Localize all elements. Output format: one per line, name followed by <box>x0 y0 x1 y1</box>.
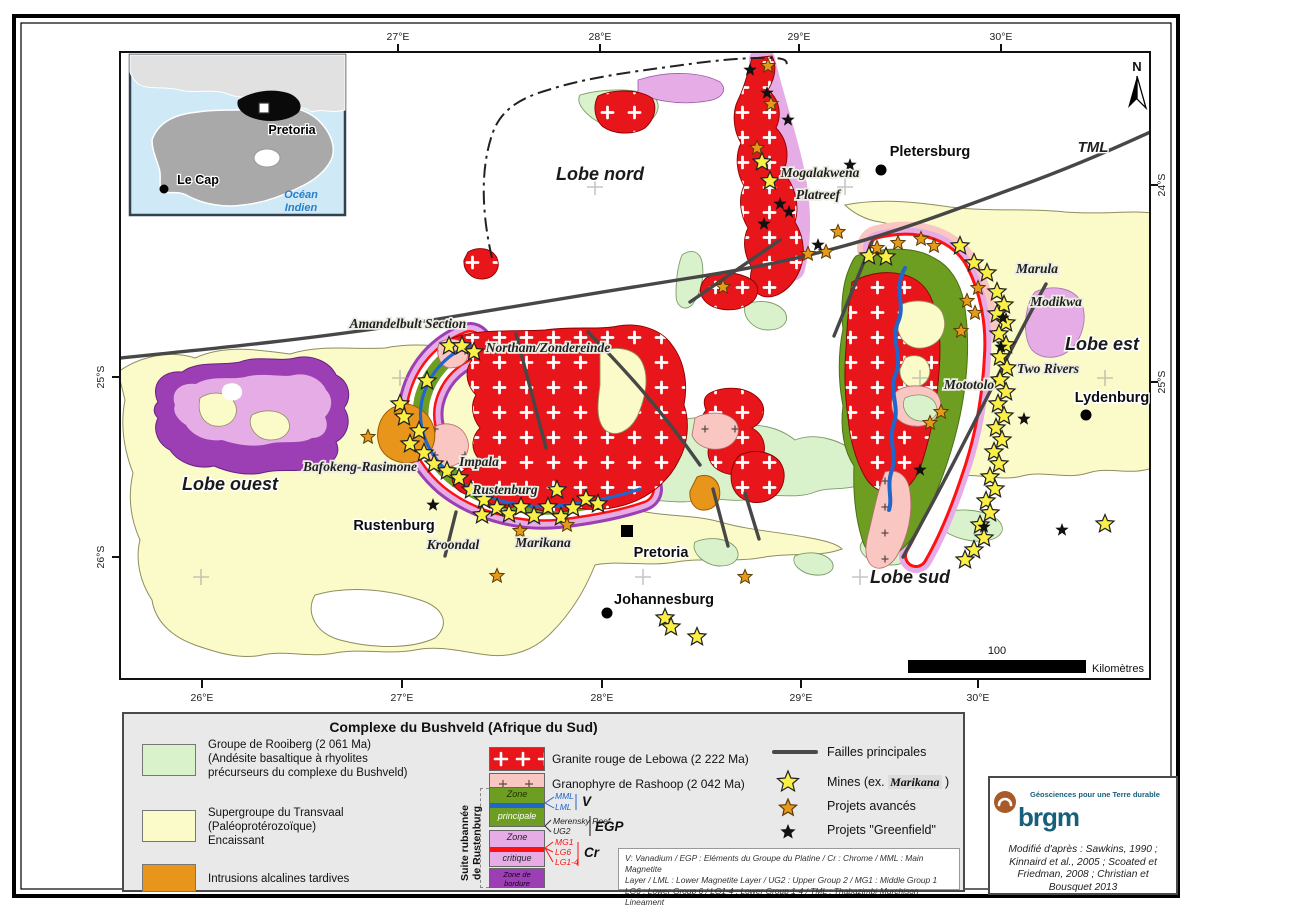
mine-label: Kroondal <box>426 537 480 552</box>
swatch-intrusions <box>142 864 196 892</box>
figure: 27°E28°E29°E30°E26°E27°E28°E29°E30°E25°S… <box>0 0 1304 922</box>
tick-label-top: 28°E <box>589 31 612 43</box>
mine-star <box>688 628 706 645</box>
city-marker <box>1081 410 1092 421</box>
scalebar: 100 Kilomètres <box>908 645 1144 675</box>
graticule-cross <box>852 569 868 585</box>
tick-label-right: 25°S <box>1156 371 1168 394</box>
city-label: Rustenburg <box>353 518 434 534</box>
egp-symbol: EGP <box>595 819 624 834</box>
city-marker <box>621 525 633 537</box>
mine-star-icon <box>774 768 802 796</box>
brgm-tagline: Géosciences pour une Terre durable <box>1030 790 1160 799</box>
north-arrow: N <box>1128 59 1146 108</box>
mine-label: Marikana <box>514 535 571 550</box>
brgm-wordmark: brgm <box>1018 802 1079 833</box>
region-label: Lobe est <box>1065 334 1140 354</box>
scalebar-unit: Kilomètres <box>1092 663 1144 675</box>
tick-label-bottom: 26°E <box>191 692 214 704</box>
graticule-cross <box>635 569 651 585</box>
zone-principale-box: Zone principale <box>489 787 545 827</box>
inset-lecap-label: Le Cap <box>177 173 219 187</box>
mine-label: Mototolo <box>943 377 995 392</box>
advanced-project-star <box>819 245 833 259</box>
mine-label: Rustenburg <box>471 482 538 497</box>
mines-label: Mines (ex. Marikana ) <box>827 775 949 790</box>
mine-star <box>1096 515 1114 532</box>
legend-rashoop-label: Granophyre de Rashoop (2 042 Ma) <box>552 777 745 791</box>
scalebar-bar <box>908 660 1086 673</box>
tick-label-bottom: 29°E <box>790 692 813 704</box>
swatch-transvaal <box>142 810 196 842</box>
mine-label: Northam/Zondereinde <box>485 340 611 355</box>
zone-bordure-box: Zone de bordure <box>489 868 545 888</box>
lml-label: LML <box>555 803 572 813</box>
fault-line-sample <box>772 750 818 754</box>
city-label: Lydenburg <box>1075 390 1149 406</box>
north-label: N <box>1132 59 1141 74</box>
tick-label-top: 27°E <box>387 31 410 43</box>
tick-label-left: 25°S <box>95 366 107 389</box>
zone-critique-box: Zone critique <box>489 830 545 867</box>
tml-fault-label: TML <box>1078 139 1109 156</box>
greenfield-star-icon <box>774 818 802 846</box>
mine-label: Platreef <box>796 187 842 202</box>
yellow-window-east2 <box>900 356 930 387</box>
legend-item-rooiberg: Groupe de Rooiberg (2 061 Ma)(Andésite b… <box>208 738 407 780</box>
leg-star-mines-glyph <box>778 771 799 791</box>
marikana-example: Marikana <box>888 775 941 789</box>
mine-label: Modikwa <box>1029 294 1082 309</box>
city-marker <box>602 608 613 619</box>
swatch-rooiberg <box>142 744 196 776</box>
tick-label-top: 30°E <box>990 31 1013 43</box>
tick-label-left: 26°S <box>95 546 107 569</box>
mml-label: MML <box>555 792 574 802</box>
mine-label: Amandelbult Section <box>349 316 467 331</box>
legend-lebowa-label: Granite rouge de Lebowa (2 222 Ma) <box>552 752 749 766</box>
city-marker <box>876 165 887 176</box>
legend-item-transvaal: Supergroupe du Transvaal(Paléoprotérozoï… <box>208 806 344 848</box>
region-label: Lobe ouest <box>182 474 279 494</box>
inset-pretoria-label: Pretoria <box>268 123 316 137</box>
brgm-logo-icon <box>992 789 1018 815</box>
suite-label: Suite rubannéede Rustenburg <box>459 784 483 902</box>
map-credit: Modifié d'après : Sawkins, 1990 ; Kinnai… <box>994 844 1172 894</box>
v-symbol: V <box>582 794 591 809</box>
leg-star-greenfield-glyph <box>780 824 795 839</box>
inset-ocean-label-1: Océan <box>284 189 318 201</box>
faults-label: Failles principales <box>827 745 926 759</box>
inset-lecap-marker <box>160 185 169 194</box>
inset-lesotho <box>254 149 280 167</box>
mine-label: Mogalakwena <box>780 165 860 180</box>
abbreviations-box: V: Vanadium / EGP : Eléments du Groupe d… <box>618 848 960 890</box>
tick-label-right: 24°S <box>1156 174 1168 197</box>
inset-pretoria-marker <box>259 103 269 113</box>
ug2-label: UG2 <box>553 827 570 837</box>
brgm-credit-box: Géosciences pour une Terre durable brgm … <box>988 776 1178 895</box>
swatch-lebowa <box>489 747 545 771</box>
advanced-project-star <box>831 225 845 239</box>
yellow-window-east1 <box>898 301 945 348</box>
legend-title: Complexe du Bushveld (Afrique du Sud) <box>124 719 803 735</box>
mine-label: Bafokeng-Rasimone <box>302 459 417 474</box>
chromite-bar <box>490 847 544 852</box>
city-label: Johannesburg <box>614 592 714 608</box>
leg-star-advanced-glyph <box>779 799 796 815</box>
inset-ocean-label-2: Indien <box>285 202 318 214</box>
city-label: Pretoria <box>634 545 690 561</box>
greenfield-project-star <box>811 238 824 251</box>
advanced-project-star <box>738 570 752 584</box>
cr-symbol: Cr <box>584 845 599 860</box>
mml-bar <box>490 803 544 808</box>
west-ring-structure <box>154 357 348 474</box>
tick-label-bottom: 30°E <box>967 692 990 704</box>
region-label: Lobe nord <box>556 164 645 184</box>
greenfield-label: Projets "Greenfield" <box>827 823 936 837</box>
lg14-label: LG1-4 <box>555 858 579 868</box>
greenfield-project-star <box>1055 523 1068 536</box>
scalebar-value: 100 <box>988 645 1006 657</box>
tick-label-top: 29°E <box>788 31 811 43</box>
city-label: Pletersburg <box>890 144 971 160</box>
mine-label: Impala <box>458 454 499 469</box>
legend: Complexe du Bushveld (Afrique du Sud) Gr… <box>122 712 965 892</box>
mine-label: Marula <box>1015 261 1058 276</box>
mine-label: Two Rivers <box>1017 361 1079 376</box>
region-label: Lobe sud <box>870 567 951 587</box>
advanced-label: Projets avancés <box>827 799 916 813</box>
tick-label-bottom: 28°E <box>591 692 614 704</box>
inset-map: Pretoria Le Cap Océan Indien <box>130 55 345 215</box>
legend-item-intrusions: Intrusions alcalines tardives <box>208 872 349 886</box>
tick-label-bottom: 27°E <box>391 692 414 704</box>
